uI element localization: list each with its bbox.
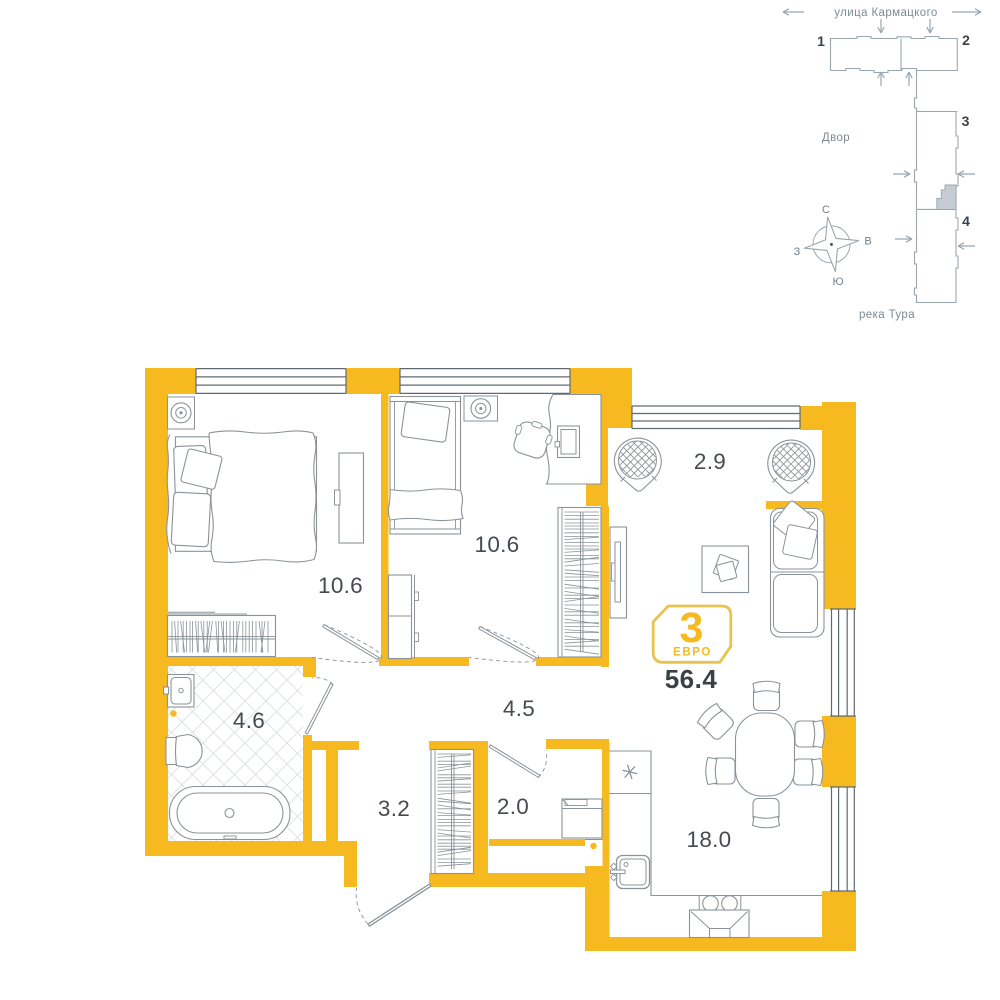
svg-text:4: 4: [962, 213, 970, 229]
svg-text:56.4: 56.4: [665, 664, 718, 694]
svg-text:Двор: Двор: [822, 132, 850, 144]
svg-text:С: С: [822, 204, 830, 216]
svg-text:3: 3: [680, 604, 704, 652]
svg-text:4.5: 4.5: [503, 696, 535, 721]
svg-text:3.2: 3.2: [378, 796, 410, 821]
svg-text:3: 3: [962, 113, 970, 129]
svg-text:1: 1: [817, 33, 825, 49]
svg-text:2.9: 2.9: [694, 449, 726, 474]
svg-text:18.0: 18.0: [687, 827, 732, 852]
svg-text:улица Кармацкого: улица Кармацкого: [834, 7, 937, 19]
svg-text:Ю: Ю: [832, 276, 843, 288]
svg-text:2.0: 2.0: [497, 794, 529, 819]
svg-text:10.6: 10.6: [318, 573, 363, 598]
svg-text:В: В: [864, 236, 871, 248]
svg-text:4.6: 4.6: [233, 708, 265, 733]
svg-text:река Тура: река Тура: [859, 309, 915, 321]
svg-text:ЕВРО: ЕВРО: [673, 647, 712, 659]
svg-text:2: 2: [962, 32, 970, 48]
svg-text:10.6: 10.6: [475, 532, 520, 557]
svg-text:З: З: [794, 246, 801, 258]
